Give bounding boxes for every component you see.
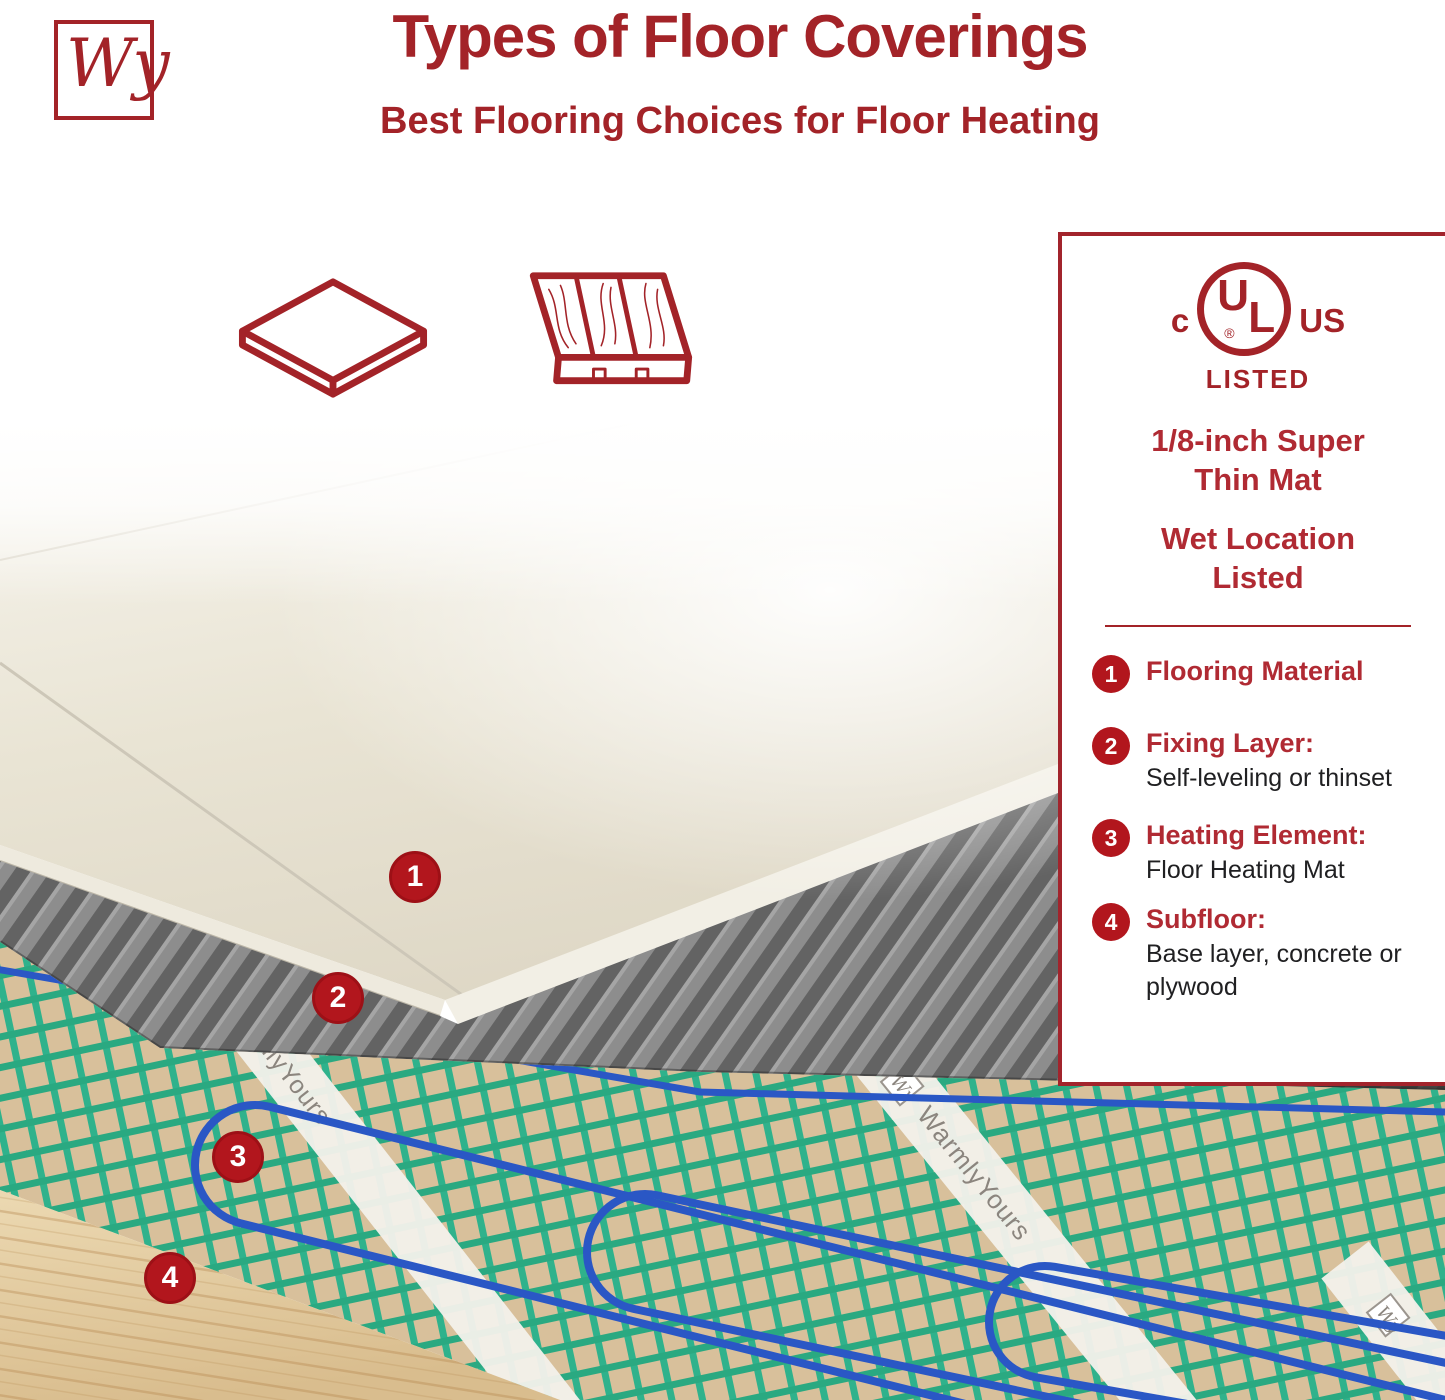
ul-circle-icon: U L ® (1197, 262, 1291, 356)
panel-headline-wet-location: Wet Location Listed (1062, 519, 1445, 597)
legend-text: Subfloor: Base layer, concrete or plywoo… (1146, 903, 1418, 1004)
headline-line: Wet Location (1062, 519, 1445, 558)
legend-title: Heating Element: (1146, 819, 1418, 852)
legend-desc: Self-leveling or thinset (1146, 762, 1418, 795)
legend-title: Subfloor: (1146, 903, 1418, 936)
ul-listed-label: LISTED (1062, 364, 1445, 395)
tile-and-stone-icon (233, 276, 433, 404)
legend-badge-4: 4 (1092, 903, 1130, 941)
legend-badge-2: 2 (1092, 727, 1130, 765)
headline-line: Listed (1062, 558, 1445, 597)
headline-line: 1/8-inch Super (1062, 421, 1445, 460)
legend-text: Fixing Layer: Self-leveling or thinset (1146, 727, 1418, 795)
layer-legend: 1 Flooring Material 2 Fixing Layer: Self… (1092, 655, 1445, 1004)
warmlyyours-logo: Wy (54, 20, 154, 120)
legend-item-3: 3 Heating Element: Floor Heating Mat (1092, 819, 1445, 887)
ul-listed-mark: c U L ® US (1062, 262, 1445, 356)
legend-text: Heating Element: Floor Heating Mat (1146, 819, 1418, 887)
legend-title: Fixing Layer: (1146, 727, 1418, 760)
page-subtitle: Best Flooring Choices for Floor Heating (180, 100, 1300, 143)
ul-c-label: c (1171, 302, 1189, 340)
legend-item-2: 2 Fixing Layer: Self-leveling or thinset (1092, 727, 1445, 795)
legend-desc: Floor Heating Mat (1146, 854, 1418, 887)
wood-and-laminate-icon (497, 268, 723, 404)
registered-symbol: ® (1224, 325, 1234, 341)
warmlyyours-logo-script: Wy (66, 18, 170, 110)
legend-badge-1: 1 (1092, 655, 1130, 693)
info-panel: c U L ® US LISTED 1/8-inch Super Thin Ma… (1058, 232, 1445, 1086)
legend-text: Flooring Material (1146, 655, 1418, 693)
panel-divider (1105, 625, 1411, 627)
legend-item-1: 1 Flooring Material (1092, 655, 1445, 693)
ul-us-label: US (1299, 302, 1345, 340)
headline-line: Thin Mat (1062, 460, 1445, 499)
ul-letter-u: U (1217, 271, 1249, 321)
legend-item-4: 4 Subfloor: Base layer, concrete or plyw… (1092, 903, 1445, 1004)
legend-desc: Base layer, concrete or plywood (1146, 938, 1418, 1004)
page-title: Types of Floor Coverings (180, 2, 1300, 71)
panel-headline-thin-mat: 1/8-inch Super Thin Mat (1062, 421, 1445, 499)
layer-marker-2: 2 (312, 972, 364, 1024)
legend-badge-3: 3 (1092, 819, 1130, 857)
layer-marker-4: 4 (144, 1252, 196, 1304)
legend-title: Flooring Material (1146, 655, 1418, 688)
layer-marker-3: 3 (212, 1131, 264, 1183)
layer-marker-1: 1 (389, 851, 441, 903)
infographic-page: Wy Types of Floor Coverings Best Floorin… (0, 0, 1445, 1400)
ul-letter-l: L (1248, 293, 1275, 343)
